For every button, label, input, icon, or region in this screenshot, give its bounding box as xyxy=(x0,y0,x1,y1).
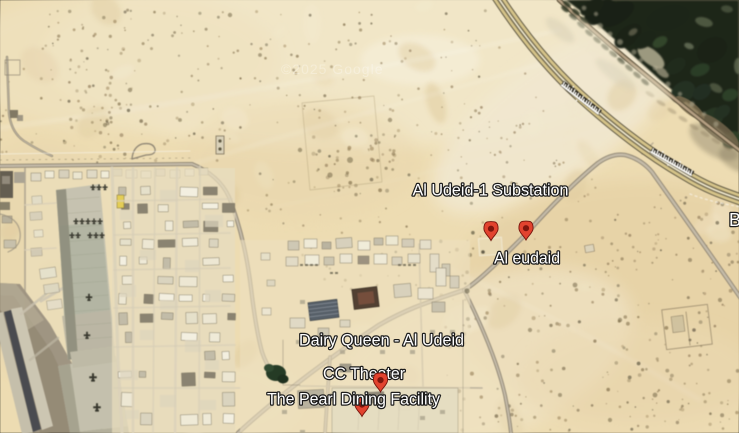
svg-text:Dairy Queen - Al Udeid: Dairy Queen - Al Udeid xyxy=(299,332,464,350)
svg-text:Al eudaid: Al eudaid xyxy=(494,250,560,268)
svg-text:B: B xyxy=(729,210,739,230)
svg-text:©2025 Google: ©2025 Google xyxy=(281,61,384,77)
svg-text:The Pearl Dining Facility: The Pearl Dining Facility xyxy=(267,391,441,409)
svg-text:CC Theater: CC Theater xyxy=(323,365,405,383)
svg-text:Al Udeid-1 Substation: Al Udeid-1 Substation xyxy=(413,182,569,200)
